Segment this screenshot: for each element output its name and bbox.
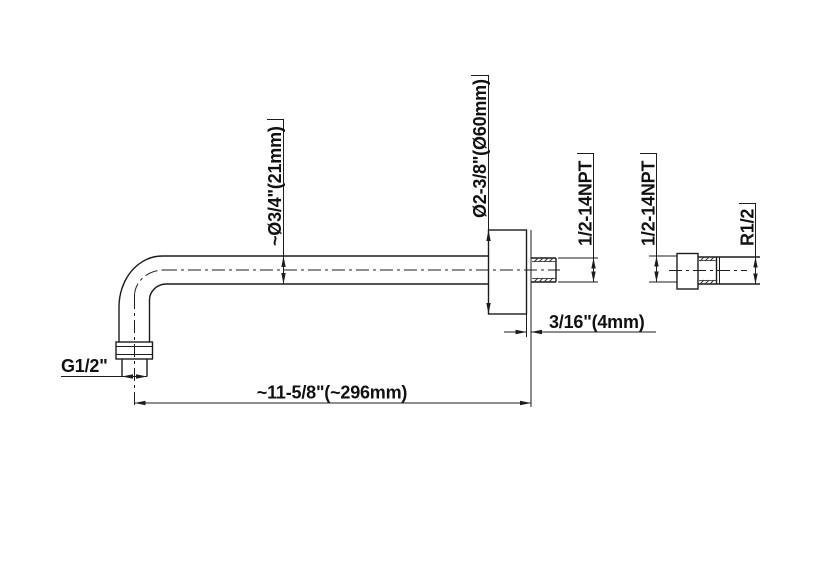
dim-wall-nipple-thread: 1/2-14NPT [558,153,598,282]
dim-fitting-outlet-thread: R1/2 [738,203,758,284]
dim-label-arm-inlet-thread: G1/2" [61,356,108,376]
elbow-inner-arc [150,284,167,300]
dim-label-fitting-inlet-thread: 1/2-14NPT [639,161,659,246]
dim-flange-diameter: Ø2-3/8"(Ø60mm) [470,75,491,314]
flange-plate [489,230,527,314]
dim-arm-length: ~11-5/8"(~296mm) [135,383,532,406]
dim-label-arm-diameter: ~Ø3/4"(21mm) [265,126,285,246]
centerlines [135,270,748,407]
dim-label-wall-nipple-thread: 1/2-14NPT [576,161,596,246]
technical-drawing-page: ~Ø3/4"(21mm) Ø2-3/8"(Ø60mm) 1/2-14NPT 1/… [0,0,831,587]
dim-label-fitting-outlet-thread: R1/2 [738,209,758,246]
pipe-fitting [677,254,760,290]
wall-flange [489,230,532,407]
fitting-hex-body [677,254,698,290]
dim-label-flange-plate-thickness: 3/16"(4mm) [549,312,645,332]
shower-arm-tube [116,256,489,377]
shower-arm-dimension-drawing: ~Ø3/4"(21mm) Ø2-3/8"(Ø60mm) 1/2-14NPT 1/… [0,0,831,587]
dim-label-flange-diameter: Ø2-3/8"(Ø60mm) [470,79,490,218]
elbow-outer-arc [119,256,162,307]
arm-elbow-centerline [135,270,165,296]
dim-fitting-inlet-thread: 1/2-14NPT [639,153,678,282]
dim-label-arm-length: ~11-5/8"(~296mm) [257,383,408,403]
dim-arm-diameter: ~Ø3/4"(21mm) [265,119,286,284]
